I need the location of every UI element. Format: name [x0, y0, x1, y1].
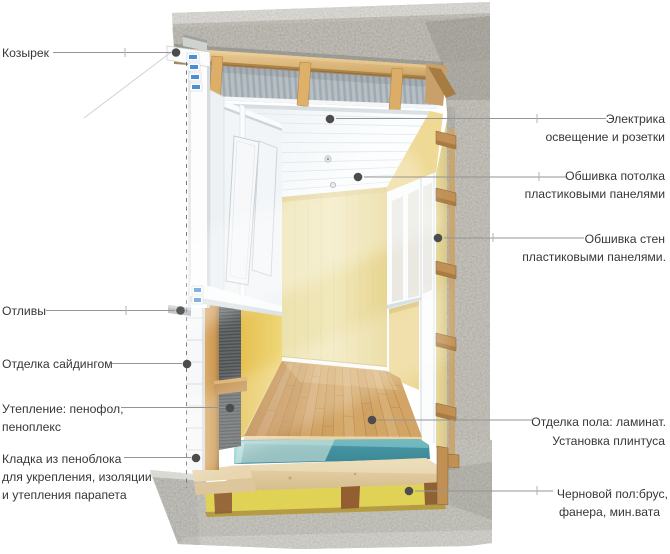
- svg-text:Черновой пол:брус,: Черновой пол:брус,: [557, 487, 668, 501]
- svg-text:для укрепления, изоляции: для укрепления, изоляции: [2, 470, 152, 484]
- svg-text:пластиковыми панелями: пластиковыми панелями: [525, 187, 665, 201]
- svg-text:Электрика: Электрика: [606, 112, 665, 126]
- svg-text:Утепление: пенофол,: Утепление: пенофол,: [2, 402, 123, 416]
- svg-text:Отливы: Отливы: [2, 304, 46, 318]
- svg-text:Обшивка потолка: Обшивка потолка: [565, 169, 665, 183]
- svg-text:пеноплекс: пеноплекс: [2, 420, 61, 434]
- svg-text:и утепления парапета: и утепления парапета: [2, 488, 127, 502]
- svg-text:Отделка сайдингом: Отделка сайдингом: [2, 357, 113, 371]
- svg-text:освещение и розетки: освещение и розетки: [545, 130, 665, 144]
- svg-text:Козырек: Козырек: [2, 46, 50, 60]
- svg-text:пластиковыми панелями.: пластиковыми панелями.: [522, 250, 666, 264]
- svg-text:Обшивка стен: Обшивка стен: [585, 232, 665, 246]
- svg-text:Отделка пола: ламинат.: Отделка пола: ламинат.: [531, 415, 666, 429]
- svg-text:Кладка из пеноблока: Кладка из пеноблока: [2, 452, 122, 466]
- svg-text:фанера, мин.вата: фанера, мин.вата: [559, 505, 660, 519]
- svg-text:Установка плинтуса: Установка плинтуса: [552, 434, 665, 448]
